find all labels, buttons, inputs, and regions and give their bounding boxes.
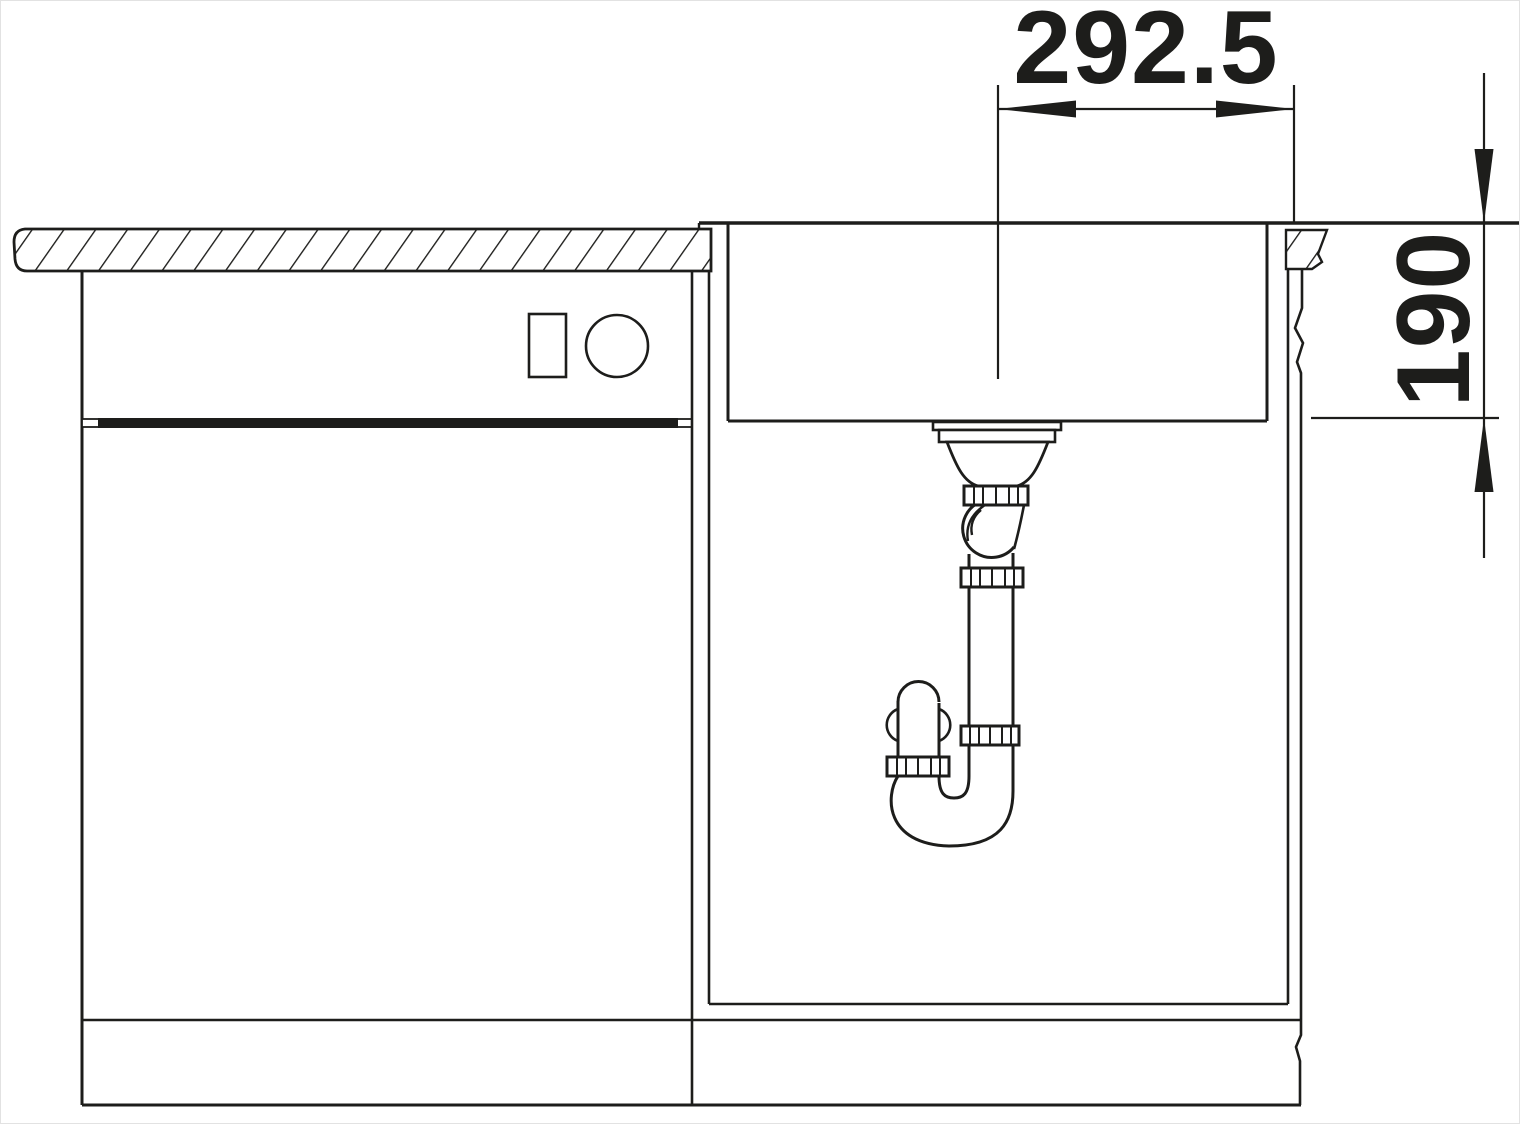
countertop-left-section — [14, 229, 711, 271]
slip-nut-upper-pipe — [961, 568, 1023, 587]
trap-outer-contour — [891, 553, 1013, 846]
outlet-bump-left — [887, 709, 898, 741]
sink-installation-diagram: 292.5 190 — [1, 1, 1519, 1123]
drain-trap-assembly — [887, 422, 1061, 846]
strainer-cup — [947, 442, 1048, 486]
countertop-right-hatched-block — [1286, 230, 1327, 269]
left-cabinet — [82, 271, 692, 1105]
elbow-right-edge — [1014, 505, 1024, 549]
panel-handle-rect — [529, 314, 566, 377]
dimension-vertical: 190 — [1311, 73, 1499, 558]
outlet-dome-cap — [898, 682, 939, 703]
arrowhead-top-icon — [1475, 149, 1494, 223]
right-wall-outer — [1295, 269, 1303, 1105]
slip-nut-outlet — [887, 757, 949, 776]
slip-nut-top — [964, 486, 1028, 505]
outlet-bump-right — [939, 709, 950, 741]
sink-base-cabinet — [82, 269, 1303, 1105]
dimension-horizontal: 292.5 — [998, 1, 1294, 379]
panel-knob-circle — [586, 315, 648, 377]
countertop-left-hatched-block — [14, 229, 711, 271]
elbow-inner-arc-2 — [971, 510, 981, 535]
drawer-gap-bar — [98, 418, 678, 428]
dimension-width-label: 292.5 — [1013, 1, 1278, 106]
dimension-depth-label: 190 — [1376, 231, 1492, 408]
arrowhead-bottom-icon — [1475, 418, 1494, 492]
slip-nut-lower-pipe — [961, 726, 1019, 745]
technical-drawing-canvas: 292.5 190 — [0, 0, 1520, 1124]
countertop-right-section — [1286, 230, 1327, 269]
strainer-flange-lower — [939, 430, 1055, 442]
